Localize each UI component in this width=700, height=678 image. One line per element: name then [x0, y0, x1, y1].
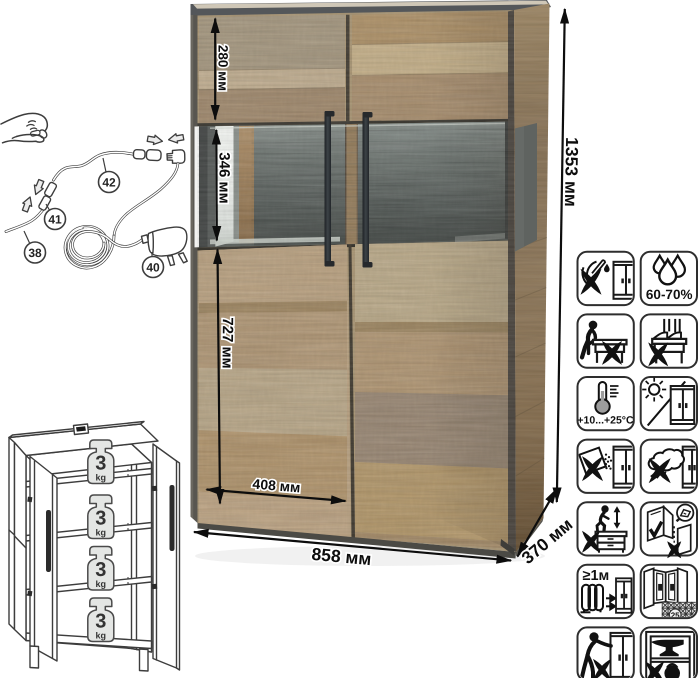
svg-text:3: 3 — [95, 559, 106, 581]
svg-text:kg: kg — [96, 631, 107, 641]
svg-text:kg: kg — [96, 528, 107, 538]
svg-text:≥1м: ≥1м — [583, 568, 610, 584]
svg-text:280 мм: 280 мм — [215, 45, 230, 91]
svg-text:kg: kg — [96, 579, 107, 589]
svg-text:kg: kg — [96, 473, 107, 483]
svg-text:3: 3 — [95, 611, 106, 633]
svg-text:3: 3 — [95, 453, 106, 475]
svg-text:3: 3 — [95, 508, 106, 530]
svg-text:42: 42 — [102, 176, 116, 190]
svg-text:+10...+25°C: +10...+25°C — [577, 415, 634, 427]
svg-text:60-70%: 60-70% — [646, 287, 693, 302]
svg-text:1353 мм: 1353 мм — [561, 137, 582, 207]
svg-text:40: 40 — [146, 261, 160, 275]
svg-text:346 мм: 346 мм — [216, 152, 233, 203]
svg-text:41: 41 — [48, 213, 62, 227]
svg-text:38: 38 — [28, 246, 42, 260]
svg-text:727 мм: 727 мм — [218, 317, 235, 369]
